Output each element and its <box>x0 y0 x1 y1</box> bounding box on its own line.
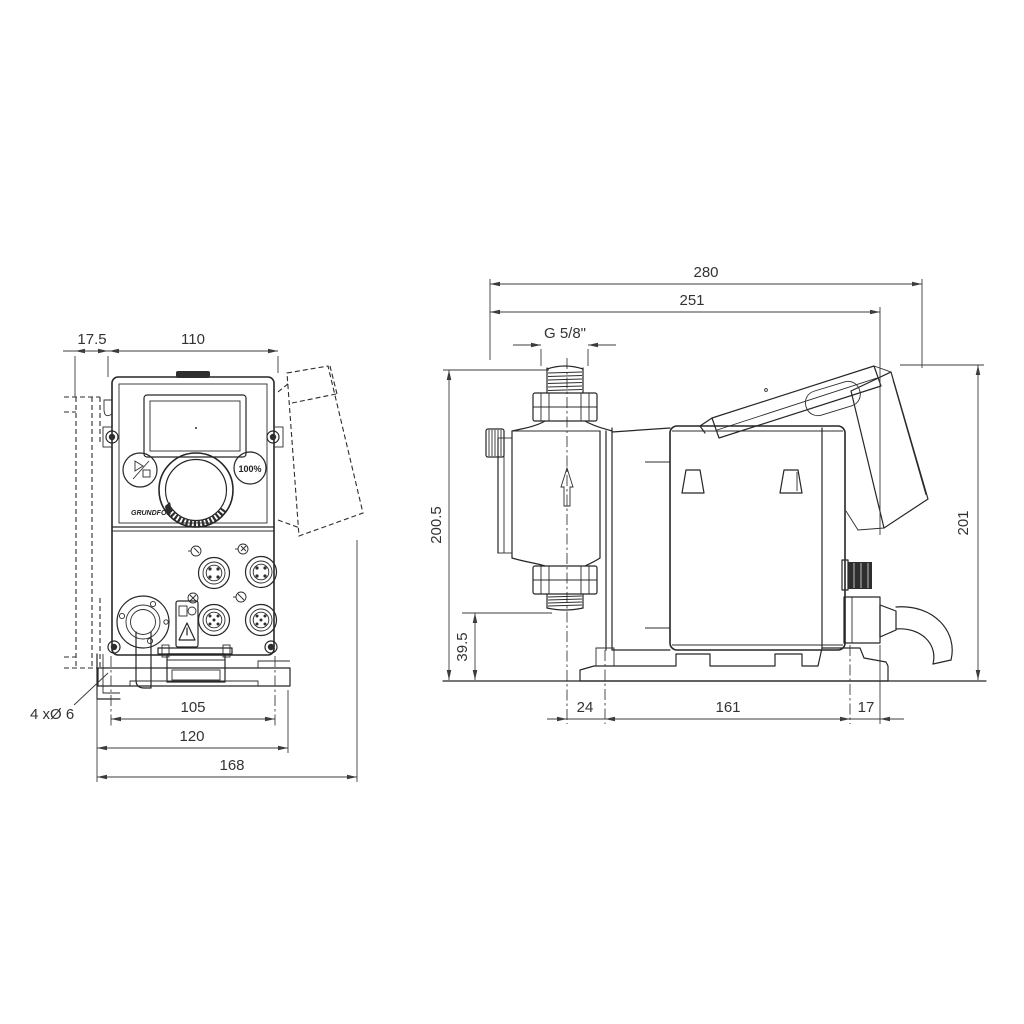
cover-clip <box>176 371 210 378</box>
union-nut-bottom <box>533 566 597 594</box>
union-nut-top <box>533 393 597 421</box>
screw <box>108 641 120 653</box>
dim-outlet-height: 39.5 <box>454 613 552 680</box>
flip-cover-open-front <box>278 366 363 536</box>
inlet-thread <box>547 366 583 393</box>
tube-clamp <box>158 645 232 682</box>
front-view: 100% GRUNDFOS <box>30 331 363 782</box>
pump-dimensional-drawing: 100% GRUNDFOS <box>0 0 1024 1024</box>
vent-slot <box>682 470 704 493</box>
dim-hole-spacing: 105 <box>111 699 275 721</box>
start-stop-button <box>123 453 157 487</box>
m12-connector <box>199 558 230 589</box>
m12-connector <box>246 557 277 588</box>
lantern <box>606 428 670 650</box>
dim-17-5-label: 17.5 <box>77 331 106 348</box>
control-cover-open <box>700 366 928 530</box>
outlet-thread <box>547 594 583 610</box>
dosing-head <box>498 421 612 566</box>
cover-window-recess <box>802 378 863 418</box>
m12-connector <box>199 605 230 636</box>
motor-housing <box>670 426 845 650</box>
dim-39-5-label: 39.5 <box>454 632 471 661</box>
bracket-hook <box>104 400 112 416</box>
dim-connection-thread: G 5/8" <box>513 325 616 366</box>
dim-width: 110 <box>109 331 278 373</box>
m12-connector <box>246 605 277 636</box>
m12-connectors <box>188 544 277 636</box>
connector-id-icons <box>188 544 248 603</box>
dim-168-label: 168 <box>219 757 244 774</box>
dim-251-label: 251 <box>679 292 704 309</box>
dim-280-label: 280 <box>693 264 718 281</box>
cable-gland <box>844 597 952 664</box>
dim-overall-depth: 280 <box>490 264 922 368</box>
logo-text: GRUNDFOS <box>131 510 171 517</box>
dim-17-label: 17 <box>858 699 875 716</box>
vent-plug <box>842 560 872 590</box>
dim-bracket-offset: 17.5 <box>63 331 278 397</box>
side-view: 280 251 G 5/8" 200.5 <box>428 264 986 724</box>
plate-corner <box>97 654 120 699</box>
capacity-button-label: 100% <box>238 464 261 474</box>
power-cable <box>896 607 952 660</box>
dim-161-label: 161 <box>715 699 740 716</box>
screw <box>267 431 279 443</box>
dim-inlet-height: 200.5 <box>428 370 549 680</box>
wall-plate-hidden <box>64 397 112 668</box>
dim-overall-height: 201 <box>900 365 984 680</box>
brand-logo: GRUNDFOS <box>131 502 172 517</box>
dim-120-label: 120 <box>179 728 204 745</box>
screw <box>265 641 277 653</box>
hole-note-label: 4 xØ 6 <box>30 706 74 723</box>
dim-bottom-chain: 24 161 17 <box>547 645 904 724</box>
dim-mounting-holes-note: 4 xØ 6 <box>30 673 108 723</box>
dim-105-label: 105 <box>180 699 205 716</box>
logo-mark <box>165 502 172 513</box>
priming-knob <box>486 429 504 457</box>
dim-201-label: 201 <box>955 510 972 535</box>
stop-icon <box>143 470 150 477</box>
dim-110-label: 110 <box>181 331 205 348</box>
cable-flange <box>117 596 169 688</box>
display <box>144 395 246 457</box>
vent-slot <box>780 470 802 493</box>
dim-200-5-label: 200.5 <box>428 506 445 544</box>
housing-screws <box>103 427 283 653</box>
front-cable <box>136 632 151 688</box>
dimensional-drawing-page: 100% GRUNDFOS <box>0 0 1024 1024</box>
capacity-button: 100% <box>234 452 266 484</box>
dim-g58-label: G 5/8" <box>544 325 586 342</box>
dim-24-label: 24 <box>577 699 594 716</box>
side-base-plate <box>580 648 888 681</box>
warning-label <box>176 601 198 647</box>
